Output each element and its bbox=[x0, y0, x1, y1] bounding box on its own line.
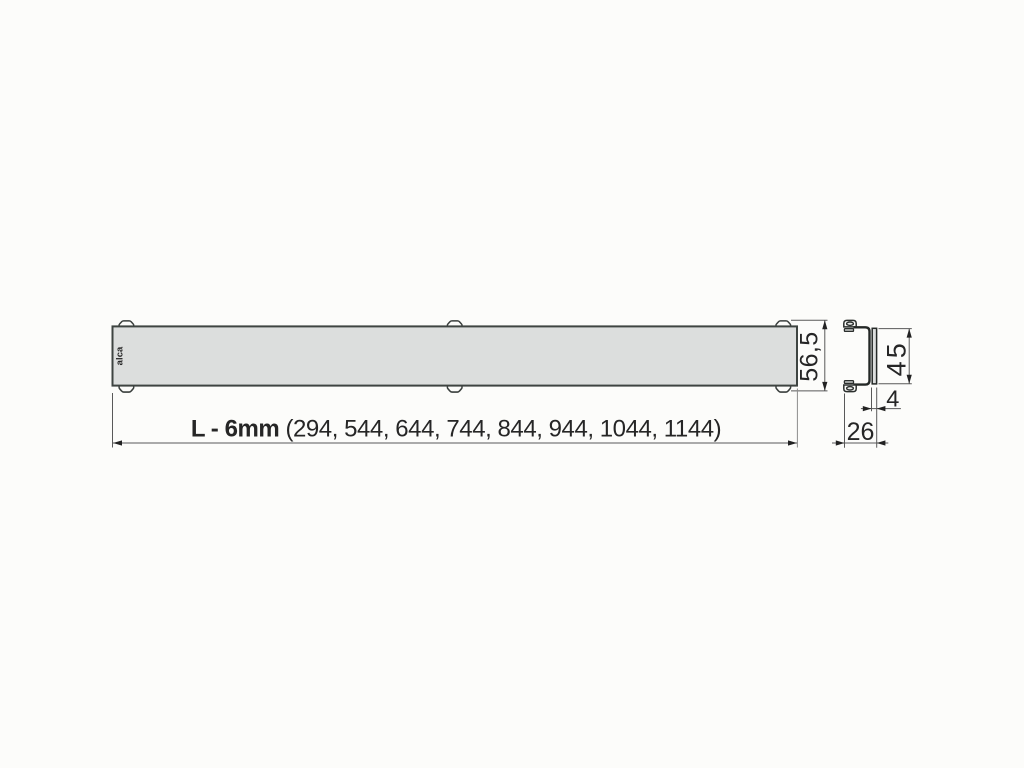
svg-text:56,5: 56,5 bbox=[796, 331, 824, 381]
svg-text:26: 26 bbox=[847, 418, 875, 446]
svg-text:4: 4 bbox=[886, 385, 899, 411]
svg-text:alca: alca bbox=[114, 346, 125, 365]
svg-text:L - 6mm (294, 544, 644, 744, 8: L - 6mm (294, 544, 644, 744, 844, 944, 1… bbox=[191, 416, 721, 443]
svg-text:45: 45 bbox=[882, 340, 912, 376]
